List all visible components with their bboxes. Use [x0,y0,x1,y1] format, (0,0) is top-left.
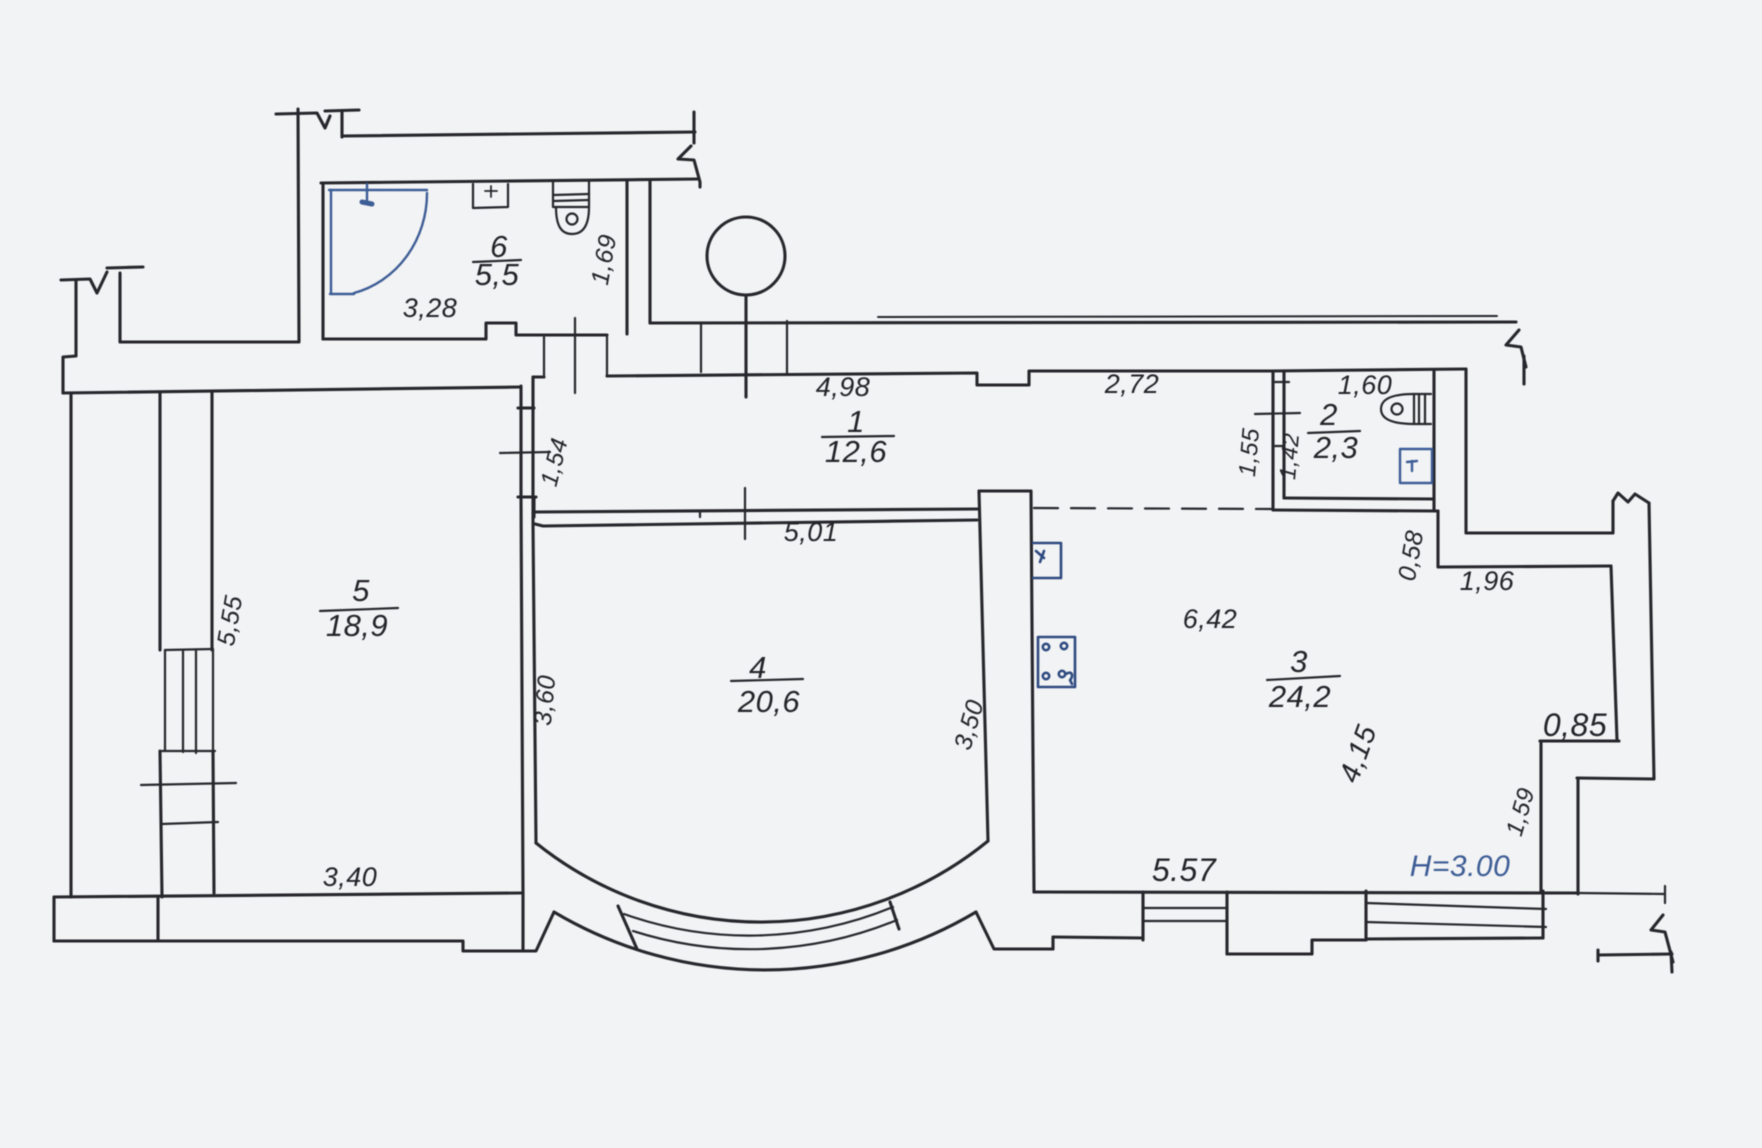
svg-text:3,60: 3,60 [529,674,561,727]
svg-text:3,28: 3,28 [403,293,458,323]
svg-text:18,9: 18,9 [326,608,388,643]
svg-text:1,60: 1,60 [1338,370,1393,400]
svg-text:12,6: 12,6 [825,434,888,469]
svg-text:5,5: 5,5 [475,257,520,292]
svg-text:H=3.00: H=3.00 [1410,850,1511,883]
svg-text:24,2: 24,2 [1268,679,1331,714]
svg-text:0,85: 0,85 [1543,707,1607,743]
svg-text:20,6: 20,6 [737,684,801,719]
svg-text:5,01: 5,01 [784,517,839,547]
svg-text:2: 2 [1319,397,1338,432]
svg-text:2,3: 2,3 [1313,430,1359,465]
svg-text:6,42: 6,42 [1183,604,1238,634]
svg-text:5: 5 [352,573,370,608]
svg-text:4,98: 4,98 [816,372,871,402]
svg-text:1,96: 1,96 [1460,566,1515,596]
svg-text:3,40: 3,40 [323,862,378,892]
svg-text:5.57: 5.57 [1152,852,1217,888]
svg-text:3: 3 [1290,644,1308,679]
svg-text:1,42: 1,42 [1274,432,1304,481]
svg-text:2,72: 2,72 [1104,369,1160,399]
svg-text:1,55: 1,55 [1234,427,1265,478]
